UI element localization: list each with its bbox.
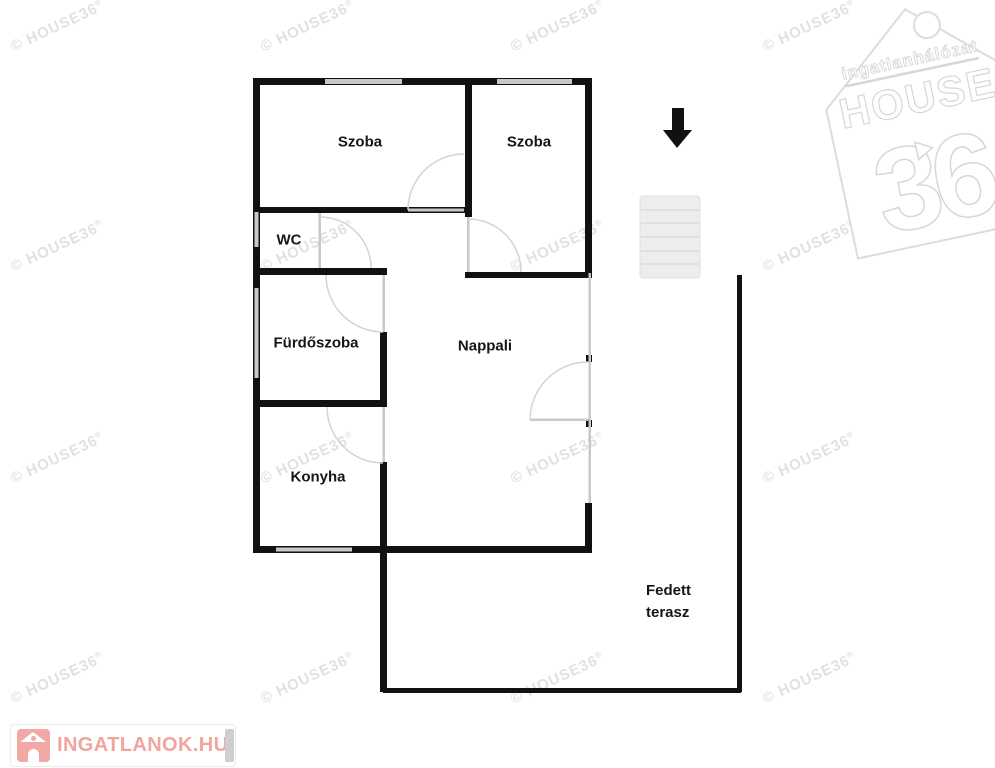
glass-wall-nappali [589,273,592,503]
room-label-konyha: Konyha [290,470,345,485]
wall-konyha-right [380,462,387,692]
wall-wc-bottom [253,268,387,275]
stairs [640,196,700,278]
terrace-wall-right [737,275,742,692]
floorplan-drawing: ingatlanhálózat HOUSE 36 [0,0,995,768]
room-label-wc: WC [277,233,302,248]
arc-furdo-door [326,275,383,332]
door-leaf-konyha [383,407,386,462]
window-bottom-konyha [276,548,352,552]
terrace-wall-bottom [383,688,741,693]
terasz-label-line2: terasz [646,602,691,624]
room-label-furdoszoba: Fürdőszoba [274,336,359,351]
window-top-left [325,79,402,84]
ingatlanok-house-icon [17,729,50,762]
window-left-wc [255,212,259,247]
opening-szoba-left-door [408,209,464,212]
wall-szoba-divider [465,78,472,217]
entry-arrow-icon [663,108,692,148]
door-leaf-furdo [383,275,386,332]
ingatlanok-roof-window [31,736,36,741]
room-label-nappali: Nappali [458,339,512,354]
arc-szoba-left-door [408,154,464,210]
room-label-fedett-terasz: Fedett terasz [646,580,691,624]
floorplan-page: © HOUSE36®© HOUSE36®© HOUSE36®© HOUSE36®… [0,0,995,768]
door-arcs [320,154,588,463]
arc-szoba-right-door [468,219,521,272]
arc-konyha-door [327,407,383,463]
window-top-right [497,79,572,84]
room-label-szoba-right: Szoba [507,135,551,150]
wall-right-upper [585,78,592,273]
door-leaf-nappali [530,419,588,422]
window-left-furdo [255,288,259,378]
terasz-label-line1: Fedett [646,580,691,602]
wall-szoba-right-bottom [465,272,592,278]
wall-right-lower [585,503,592,553]
arc-nappali-terrace-door [530,362,588,420]
door-leaf-wc [319,213,322,268]
wall-furdo-right [380,332,387,407]
ingatlanok-logo-badge: INGATLANOK.HU [10,724,236,767]
door-leaf-szoba-right [467,217,470,272]
room-label-szoba-left: Szoba [338,135,382,150]
ingatlanok-logo-text: INGATLANOK.HU [57,725,228,766]
house36-logo: ingatlanhálózat HOUSE 36 [809,0,995,266]
wall-furdo-bottom [253,400,387,407]
arc-wc-door [320,217,371,268]
ingatlanok-house-door [28,749,39,762]
ingatlanok-badge-tab [225,729,234,762]
